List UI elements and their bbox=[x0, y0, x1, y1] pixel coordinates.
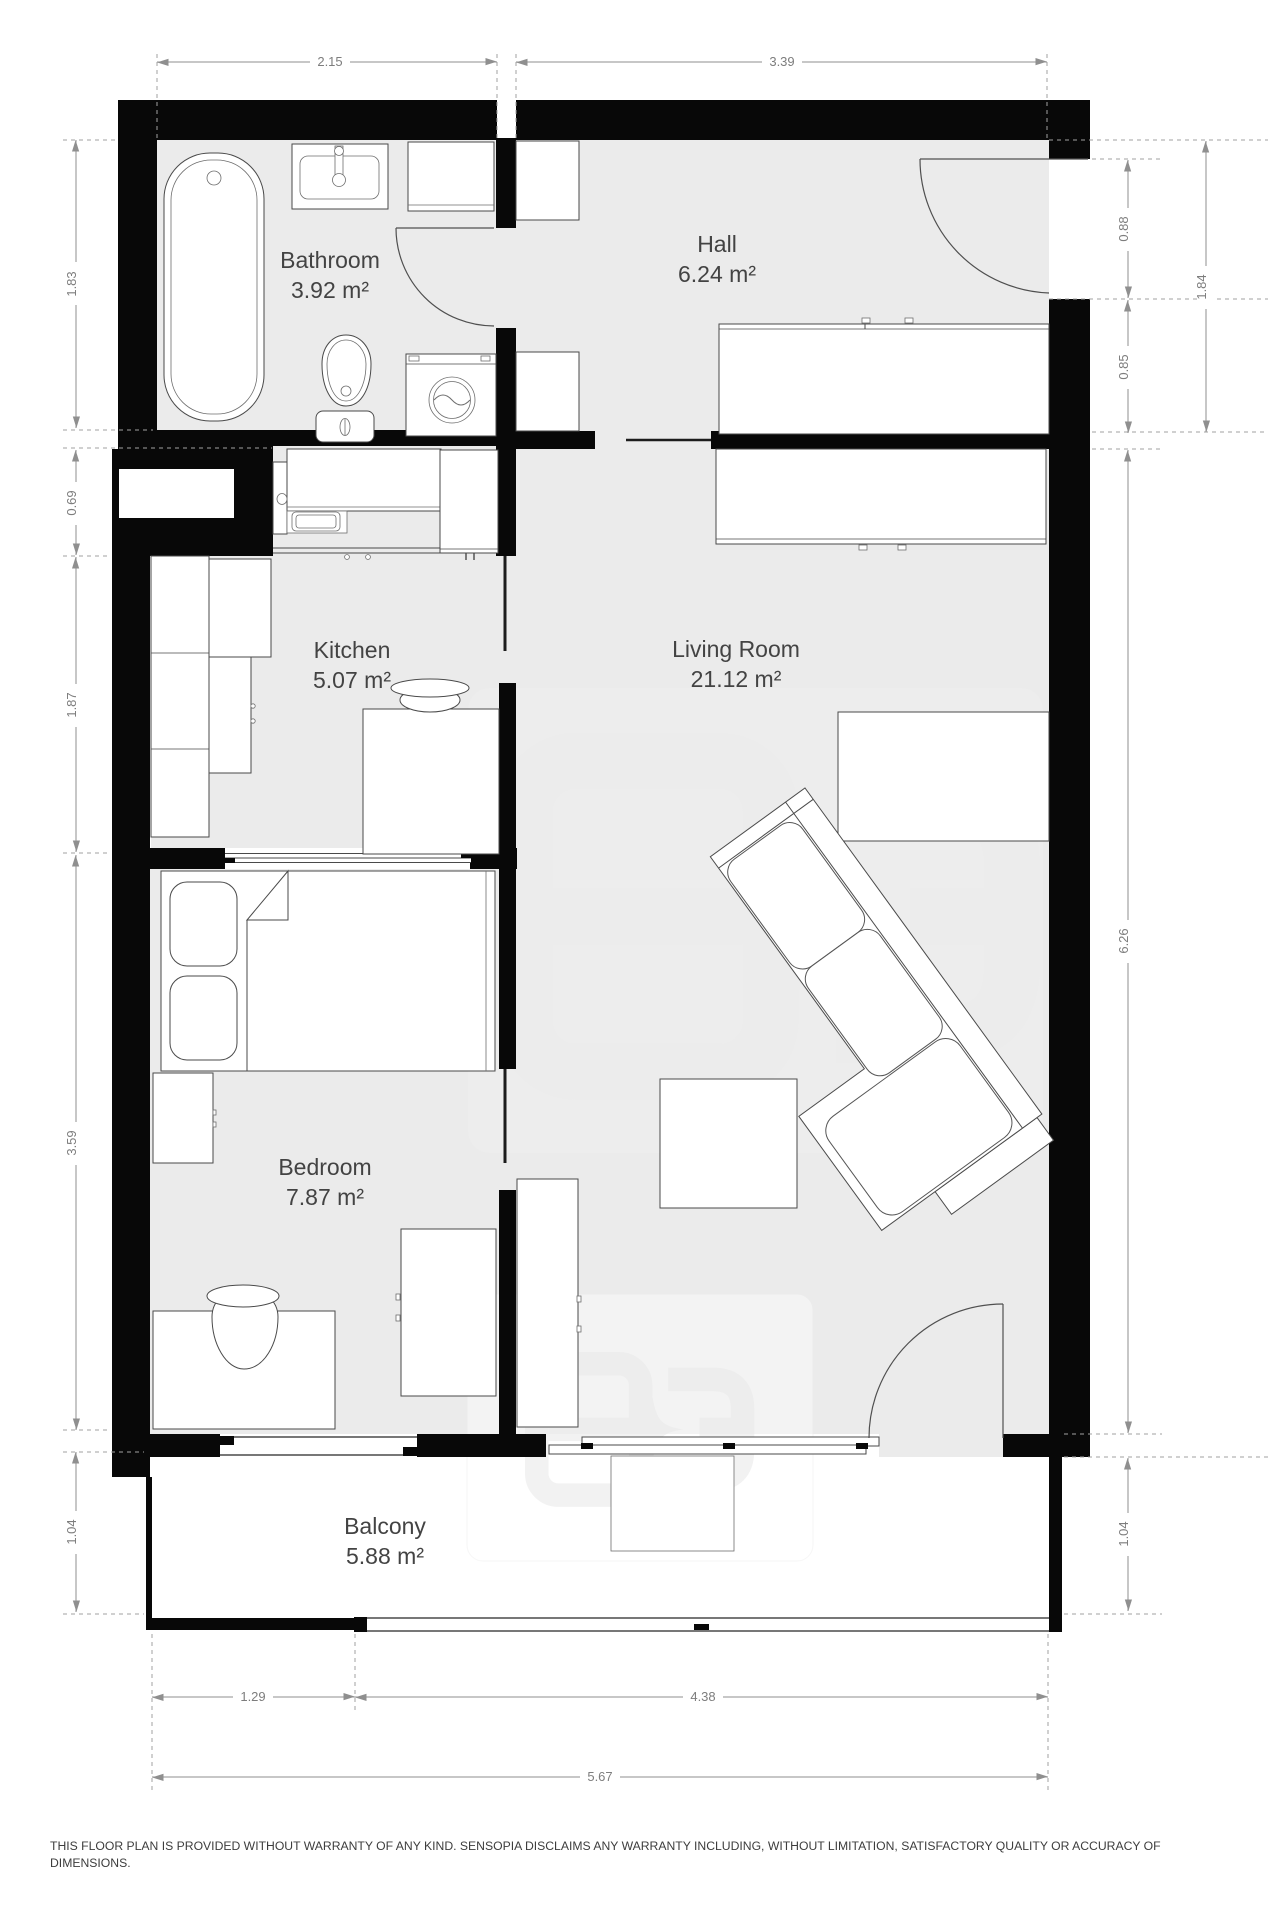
svg-text:21.12 m²: 21.12 m² bbox=[691, 666, 782, 692]
svg-text:4.38: 4.38 bbox=[690, 1689, 715, 1704]
svg-text:2.15: 2.15 bbox=[317, 54, 342, 69]
svg-text:Bedroom: Bedroom bbox=[278, 1154, 371, 1180]
svg-text:5.88 m²: 5.88 m² bbox=[346, 1543, 424, 1569]
svg-text:5.07 m²: 5.07 m² bbox=[313, 667, 391, 693]
svg-text:THIS FLOOR PLAN IS PROVIDED WI: THIS FLOOR PLAN IS PROVIDED WITHOUT WARR… bbox=[50, 1839, 1161, 1853]
svg-text:Bathroom: Bathroom bbox=[280, 247, 380, 273]
svg-text:3.92 m²: 3.92 m² bbox=[291, 277, 369, 303]
svg-text:7.87 m²: 7.87 m² bbox=[286, 1184, 364, 1210]
svg-text:1.83: 1.83 bbox=[64, 271, 79, 296]
svg-text:3.59: 3.59 bbox=[64, 1130, 79, 1155]
svg-text:6.26: 6.26 bbox=[1116, 928, 1131, 953]
svg-text:1.04: 1.04 bbox=[64, 1519, 79, 1544]
svg-text:0.69: 0.69 bbox=[64, 490, 79, 515]
svg-text:3.39: 3.39 bbox=[769, 54, 794, 69]
svg-text:Hall: Hall bbox=[697, 231, 737, 257]
svg-text:1.04: 1.04 bbox=[1116, 1521, 1131, 1546]
svg-text:1.29: 1.29 bbox=[240, 1689, 265, 1704]
svg-text:5.67: 5.67 bbox=[587, 1769, 612, 1784]
svg-text:0.88: 0.88 bbox=[1116, 216, 1131, 241]
svg-text:0.85: 0.85 bbox=[1116, 354, 1131, 379]
svg-text:Living Room: Living Room bbox=[672, 636, 800, 662]
svg-text:6.24 m²: 6.24 m² bbox=[678, 261, 756, 287]
svg-text:1.84: 1.84 bbox=[1194, 274, 1209, 299]
svg-text:1.87: 1.87 bbox=[64, 692, 79, 717]
svg-text:DIMENSIONS.: DIMENSIONS. bbox=[50, 1856, 131, 1870]
svg-text:Balcony: Balcony bbox=[344, 1513, 426, 1539]
svg-text:Kitchen: Kitchen bbox=[314, 637, 391, 663]
